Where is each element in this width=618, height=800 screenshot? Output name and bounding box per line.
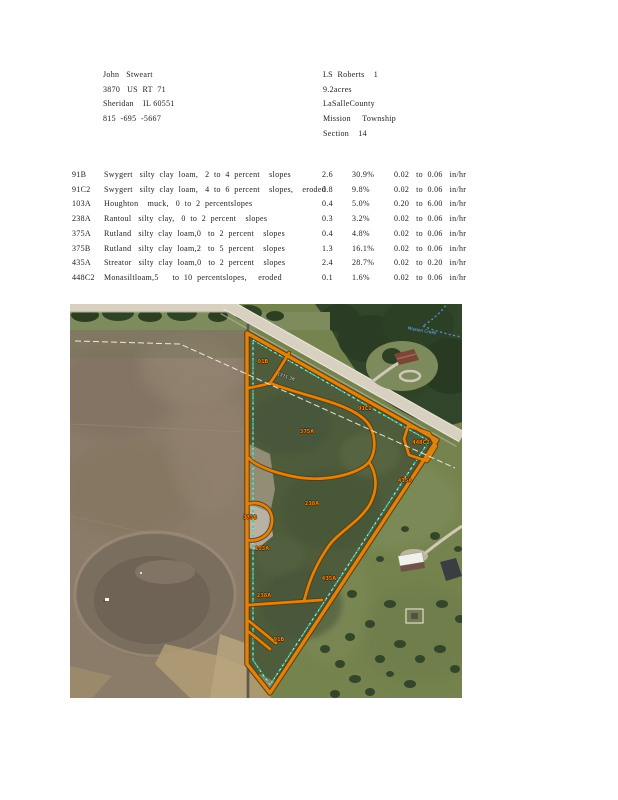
cell-description: Swygert silty clay loam, 2 to 4 percent … xyxy=(104,170,322,179)
soil-code-label: 238A xyxy=(305,502,319,507)
soil-code-label: 435A xyxy=(398,479,412,484)
distance-label: 1371.3ft xyxy=(277,372,296,382)
cell-percent: 4.8% xyxy=(352,229,394,238)
parcel-line: Section 14 xyxy=(323,127,396,142)
owner-line: 815 -695 -5667 xyxy=(103,112,175,127)
cell-acres: 0.8 xyxy=(322,185,352,194)
parcel-info-block: LS Roberts 19.2acresLaSalleCountyMission… xyxy=(323,68,396,142)
soil-code-label: 375B xyxy=(243,516,257,521)
cell-acres: 2.6 xyxy=(322,170,352,179)
parcel-line: Mission Township xyxy=(323,112,396,127)
map-label-layer: 91B91C2375A448C2435A238A375B103A435A238A… xyxy=(70,304,462,698)
cell-permeability: 0.02 to 0.20 in/hr xyxy=(394,258,618,267)
cell-percent: 1.6% xyxy=(352,273,394,282)
soil-table: 91BSwygert silty clay loam, 2 to 4 perce… xyxy=(0,167,618,285)
cell-code: 103A xyxy=(72,199,104,208)
cell-permeability: 0.20 to 6.00 in/hr xyxy=(394,199,618,208)
soil-map-image: 91B91C2375A448C2435A238A375B103A435A238A… xyxy=(70,304,462,698)
cell-description: Swygert silty clay loam, 4 to 6 percent … xyxy=(104,185,322,194)
parcel-line: LaSalleCounty xyxy=(323,97,396,112)
cell-permeability: 0.02 to 0.06 in/hr xyxy=(394,214,618,223)
table-row: 435AStreator silty clay loam,0 to 2 perc… xyxy=(0,256,618,271)
soil-code-label: 91C2 xyxy=(358,407,372,412)
cell-percent: 30.9% xyxy=(352,170,394,179)
cell-description: Rutland silty clay loam,2 to 5 percent s… xyxy=(104,244,322,253)
cell-acres: 0.4 xyxy=(322,199,352,208)
soil-code-label: 238A xyxy=(257,594,271,599)
cell-acres: 0.4 xyxy=(322,229,352,238)
cell-code: 91B xyxy=(72,170,104,179)
stream-name-label: Mission Creek xyxy=(407,326,436,335)
owner-line: Sheridan IL 60551 xyxy=(103,97,175,112)
table-row: 375BRutland silty clay loam,2 to 5 perce… xyxy=(0,241,618,256)
cell-description: Streator silty clay loam,0 to 2 percent … xyxy=(104,258,322,267)
cell-acres: 1.3 xyxy=(322,244,352,253)
parcel-line: 9.2acres xyxy=(323,83,396,98)
cell-percent: 5.0% xyxy=(352,199,394,208)
cell-permeability: 0.02 to 0.06 in/hr xyxy=(394,185,618,194)
soil-table-rows: 91BSwygert silty clay loam, 2 to 4 perce… xyxy=(0,167,618,285)
table-row: 103AHoughton muck, 0 to 2 percentslopes0… xyxy=(0,197,618,212)
owner-address-block: John Stweart3870 US RT 71Sheridan IL 605… xyxy=(103,68,175,127)
table-row: 91BSwygert silty clay loam, 2 to 4 perce… xyxy=(0,167,618,182)
cell-permeability: 0.02 to 0.06 in/hr xyxy=(394,244,618,253)
cell-acres: 0.1 xyxy=(322,273,352,282)
cell-permeability: 0.02 to 0.06 in/hr xyxy=(394,273,618,282)
cell-percent: 9.8% xyxy=(352,185,394,194)
cell-code: 375A xyxy=(72,229,104,238)
soil-code-label: 91B xyxy=(274,638,285,643)
cell-percent: 28.7% xyxy=(352,258,394,267)
cell-permeability: 0.02 to 0.06 in/hr xyxy=(394,229,618,238)
cell-percent: 3.2% xyxy=(352,214,394,223)
soil-code-label: 375A xyxy=(300,430,314,435)
owner-line: John Stweart xyxy=(103,68,175,83)
cell-code: 91C2 xyxy=(72,185,104,194)
cell-description: Rutland silty clay loam,0 to 2 percent s… xyxy=(104,229,322,238)
cell-description: Rantoul silty clay, 0 to 2 percent slope… xyxy=(104,214,322,223)
soil-code-label: 103A xyxy=(255,547,269,552)
cell-code: 448C2 xyxy=(72,273,104,282)
table-row: 448C2Monasiltloam,5 to 10 percentslopes,… xyxy=(0,270,618,285)
table-row: 238ARantoul silty clay, 0 to 2 percent s… xyxy=(0,211,618,226)
parcel-line: LS Roberts 1 xyxy=(323,68,396,83)
cell-code: 435A xyxy=(72,258,104,267)
cell-description: Monasiltloam,5 to 10 percentslopes, erod… xyxy=(104,273,322,282)
cell-permeability: 0.02 to 0.06 in/hr xyxy=(394,170,618,179)
soil-code-label: 448C2 xyxy=(412,441,429,446)
table-row: 375ARutland silty clay loam,0 to 2 perce… xyxy=(0,226,618,241)
report-page: John Stweart3870 US RT 71Sheridan IL 605… xyxy=(0,0,618,800)
cell-code: 375B xyxy=(72,244,104,253)
soil-code-label: 435A xyxy=(322,577,336,582)
cell-description: Houghton muck, 0 to 2 percentslopes xyxy=(104,199,322,208)
soil-code-label: 91B xyxy=(258,360,269,365)
cell-percent: 16.1% xyxy=(352,244,394,253)
cell-code: 238A xyxy=(72,214,104,223)
cell-acres: 2.4 xyxy=(322,258,352,267)
table-row: 91C2Swygert silty clay loam, 4 to 6 perc… xyxy=(0,182,618,197)
owner-line: 3870 US RT 71 xyxy=(103,83,175,98)
cell-acres: 0.3 xyxy=(322,214,352,223)
